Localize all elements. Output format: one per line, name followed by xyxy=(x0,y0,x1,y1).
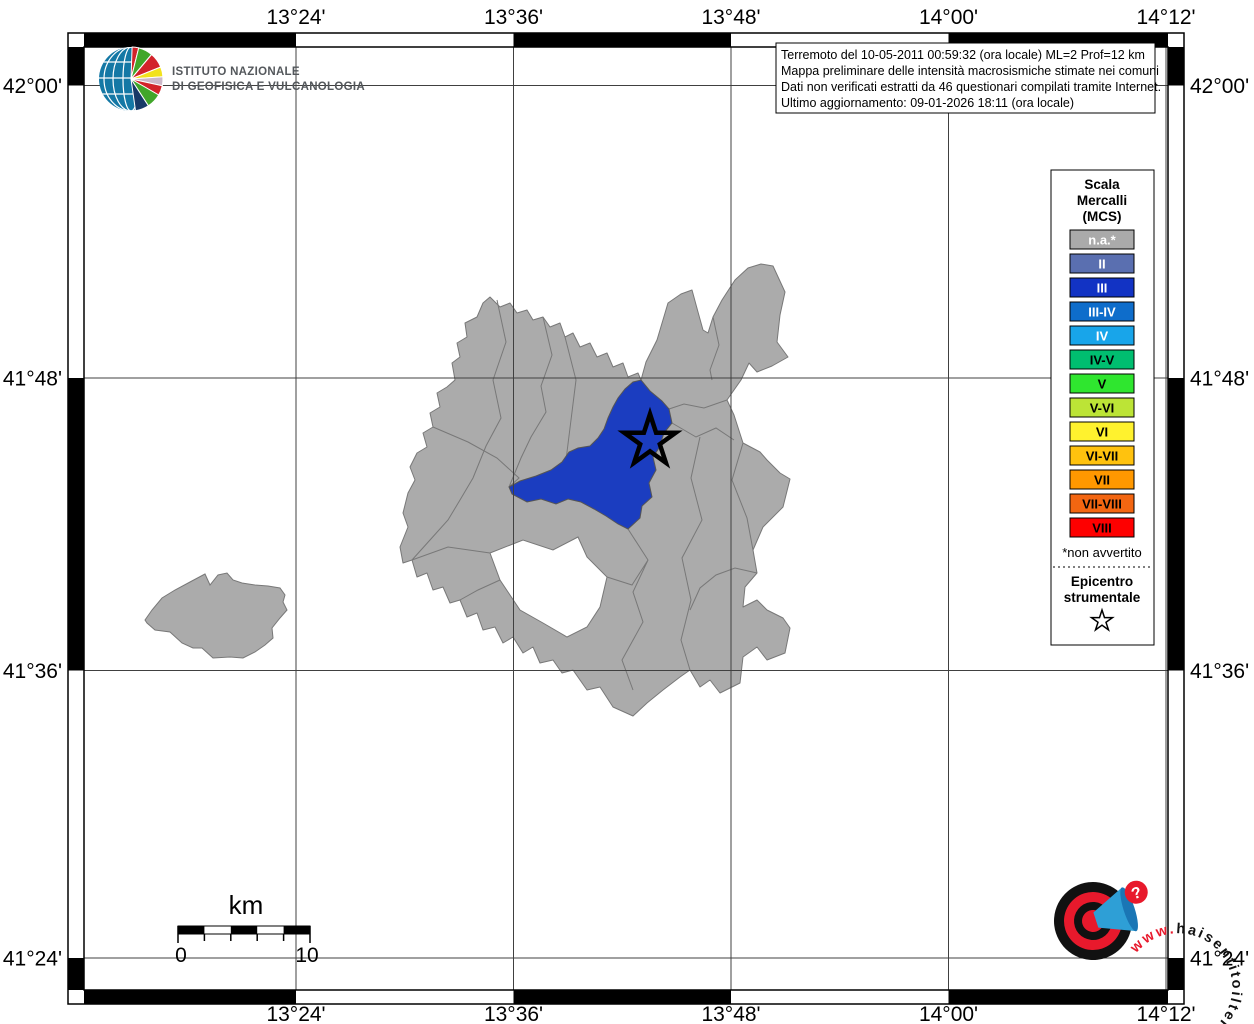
axis-tick-label: 14°12' xyxy=(1136,1003,1195,1024)
axis-tick-label: 13°36' xyxy=(484,6,543,29)
macroseismic-map: 13°24' 13°36' 13°48' 14°00' 14°12' 13°24… xyxy=(0,0,1254,1024)
legend-item-label: VIII xyxy=(1092,521,1112,536)
ingv-name-line2: DI GEOFISICA E VULCANOLOGIA xyxy=(172,81,365,93)
scale-end-label: 10 xyxy=(295,944,318,967)
legend-item: VII xyxy=(1070,470,1134,489)
legend-title-line3: (MCS) xyxy=(1083,209,1122,224)
axis-tick-label: 13°24' xyxy=(266,6,325,29)
axis-tick-label: 41°36' xyxy=(1190,660,1249,683)
event-info-line2: Mappa preliminare delle intensità macros… xyxy=(781,64,1159,78)
legend-item: III-IV xyxy=(1070,302,1134,321)
legend-item-label: III-IV xyxy=(1088,305,1116,320)
axis-labels-right: 42°00' 41°48' 41°36' 41°24' xyxy=(1190,75,1249,971)
legend-item-label: V xyxy=(1098,377,1107,392)
axis-tick-label: 13°48' xyxy=(701,1003,760,1024)
legend-item: V-VI xyxy=(1070,398,1134,417)
legend-item: V xyxy=(1070,374,1134,393)
legend-item-label: n.a.* xyxy=(1088,233,1116,248)
scale-start-label: 0 xyxy=(175,944,187,967)
axis-tick-label: 14°00' xyxy=(919,6,978,29)
event-info-line3: Dati non verificati estratti da 46 quest… xyxy=(781,80,1161,94)
ingv-name-line1: ISTITUTO NAZIONALE xyxy=(172,66,300,78)
ingv-logo: ISTITUTO NAZIONALE DI GEOFISICA E VULCAN… xyxy=(99,47,365,111)
legend-item-label: III xyxy=(1097,281,1108,296)
legend-item: VI xyxy=(1070,422,1134,441)
axis-tick-label: 41°36' xyxy=(3,660,62,683)
scale-bar: km 0 10 xyxy=(175,890,319,967)
axis-labels-top: 13°24' 13°36' 13°48' 14°00' 14°12' xyxy=(266,6,1195,29)
legend-item: II xyxy=(1070,254,1134,273)
legend-footnote: *non avvertito xyxy=(1062,545,1142,560)
axis-tick-label: 14°12' xyxy=(1136,6,1195,29)
legend-epicenter-line1: Epicentro xyxy=(1071,574,1133,589)
legend-item: VI-VII xyxy=(1070,446,1134,465)
legend-item-label: VI xyxy=(1096,425,1108,440)
axis-tick-label: 41°48' xyxy=(1190,368,1249,391)
legend-item: VII-VIII xyxy=(1070,494,1134,513)
legend-item-label: V-VI xyxy=(1090,401,1115,416)
axis-tick-label: 13°48' xyxy=(701,6,760,29)
axis-labels-left: 42°00' 41°48' 41°36' 41°24' xyxy=(3,75,62,971)
axis-tick-label: 42°00' xyxy=(3,75,62,98)
legend-item: IV xyxy=(1070,326,1134,345)
legend-item: III xyxy=(1070,278,1134,297)
axis-tick-label: 42°00' xyxy=(1190,75,1249,98)
legend: Scala Mercalli (MCS) n.a.* II III III-IV… xyxy=(1051,170,1154,645)
legend-item-label: IV xyxy=(1096,329,1109,344)
ingv-globe-icon xyxy=(99,47,163,111)
legend-item-label: VII xyxy=(1094,473,1110,488)
axis-tick-label: 13°24' xyxy=(266,1003,325,1024)
legend-item-label: IV-V xyxy=(1090,353,1115,368)
legend-item: n.a.* xyxy=(1070,230,1134,249)
legend-item: IV-V xyxy=(1070,350,1134,369)
scale-unit-label: km xyxy=(229,890,264,920)
legend-epicenter-line2: strumentale xyxy=(1064,590,1141,605)
event-info-line4: Ultimo aggiornamento: 09-01-2026 18:11 (… xyxy=(781,96,1074,110)
legend-item: VIII xyxy=(1070,518,1134,537)
axis-labels-bottom: 13°24' 13°36' 13°48' 14°00' 14°12' xyxy=(266,1003,1195,1024)
legend-item-label: II xyxy=(1098,257,1105,272)
legend-item-label: VI-VII xyxy=(1086,449,1119,464)
legend-item-label: VII-VIII xyxy=(1082,497,1122,512)
axis-tick-label: 13°36' xyxy=(484,1003,543,1024)
axis-tick-label: 41°24' xyxy=(3,948,62,971)
legend-title-line1: Scala xyxy=(1084,177,1120,192)
event-info-box: Terremoto del 10-05-2011 00:59:32 (ora l… xyxy=(776,43,1161,113)
axis-tick-label: 14°00' xyxy=(919,1003,978,1024)
municipalities-layer xyxy=(145,264,790,716)
axis-tick-label: 41°48' xyxy=(3,368,62,391)
event-info-line1: Terremoto del 10-05-2011 00:59:32 (ora l… xyxy=(781,48,1145,62)
legend-title-line2: Mercalli xyxy=(1077,193,1127,208)
municipality-southwest xyxy=(145,573,287,658)
